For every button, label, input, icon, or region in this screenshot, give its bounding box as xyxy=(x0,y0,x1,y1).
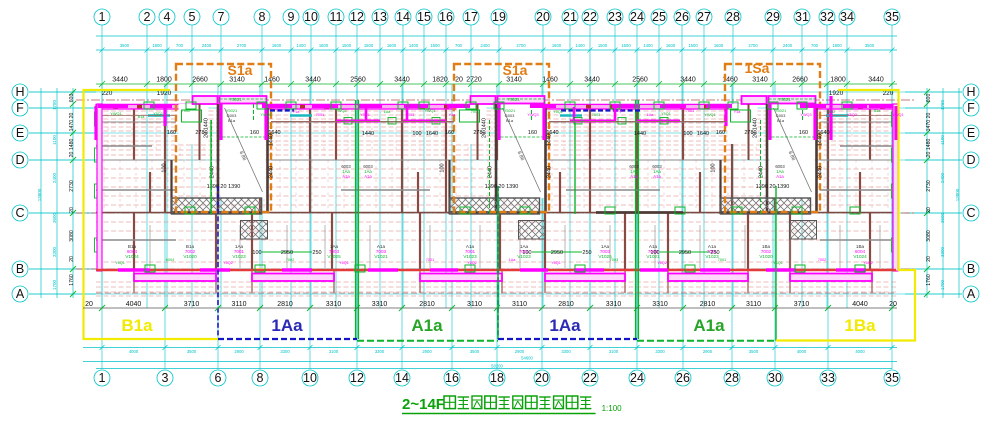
svg-text:S1a: S1a xyxy=(228,62,253,78)
svg-text:2440: 2440 xyxy=(818,166,824,178)
svg-text:3500: 3500 xyxy=(120,43,130,48)
svg-text:2440: 2440 xyxy=(759,166,765,178)
svg-text:A1a: A1a xyxy=(693,316,725,335)
svg-text:7001: 7001 xyxy=(718,258,726,262)
svg-text:600: 600 xyxy=(69,94,75,103)
svg-text:2900: 2900 xyxy=(234,349,244,354)
svg-text:700: 700 xyxy=(455,43,463,48)
svg-text:Y5021: Y5021 xyxy=(778,97,791,102)
svg-text:YWQ1: YWQ1 xyxy=(892,113,903,117)
svg-text:1820: 1820 xyxy=(432,77,448,84)
svg-text:1400: 1400 xyxy=(409,43,419,48)
svg-text:15: 15 xyxy=(417,10,431,24)
svg-text:1800: 1800 xyxy=(830,77,846,84)
svg-text:B1a: B1a xyxy=(506,118,514,123)
svg-text:V1025: V1025 xyxy=(327,254,341,259)
svg-text:V1023: V1023 xyxy=(463,254,477,259)
svg-text:2950: 2950 xyxy=(281,250,293,256)
svg-text:B1a: B1a xyxy=(228,118,236,123)
svg-text:24: 24 xyxy=(630,371,644,385)
svg-text:3310: 3310 xyxy=(652,301,668,308)
svg-text:20 1440: 20 1440 xyxy=(204,118,210,138)
svg-text:A1a: A1a xyxy=(776,174,784,179)
svg-text:A1a: A1a xyxy=(630,174,638,179)
svg-text:160: 160 xyxy=(167,130,176,136)
svg-text:1600: 1600 xyxy=(621,43,631,48)
svg-text:7002: 7002 xyxy=(182,109,190,113)
svg-text:35: 35 xyxy=(885,10,899,24)
svg-text:100: 100 xyxy=(711,163,717,172)
svg-text:Y1a: Y1a xyxy=(449,113,457,117)
svg-text:22: 22 xyxy=(583,371,597,385)
svg-text:2700: 2700 xyxy=(237,43,247,48)
svg-text:18: 18 xyxy=(490,371,504,385)
svg-text:8: 8 xyxy=(257,371,264,385)
svg-text:3310: 3310 xyxy=(326,301,342,308)
svg-text:F: F xyxy=(967,101,975,115)
svg-text:S1a: S1a xyxy=(503,62,528,78)
svg-text:3140: 3140 xyxy=(752,77,768,84)
svg-text:21: 21 xyxy=(563,10,577,24)
svg-text:Y5Q1: Y5Q1 xyxy=(360,113,370,117)
svg-text:54600: 54600 xyxy=(521,356,533,361)
svg-text:26: 26 xyxy=(675,10,689,24)
svg-text:700: 700 xyxy=(176,43,184,48)
svg-text:100: 100 xyxy=(252,250,261,256)
svg-text:1Sa: 1Sa xyxy=(745,60,770,76)
svg-text:250: 250 xyxy=(312,250,321,256)
svg-text:3100: 3100 xyxy=(609,349,619,354)
svg-text:Y6Q1: Y6Q1 xyxy=(339,261,349,265)
svg-text:4: 4 xyxy=(164,10,171,24)
svg-text:7003: 7003 xyxy=(592,113,600,117)
svg-text:20 1440: 20 1440 xyxy=(482,118,488,138)
svg-text:1800: 1800 xyxy=(156,77,172,84)
svg-text:100: 100 xyxy=(522,250,531,256)
svg-text:3440: 3440 xyxy=(868,77,884,84)
svg-text:20 1480: 20 1480 xyxy=(69,139,75,158)
svg-text:2900: 2900 xyxy=(515,349,525,354)
svg-text:7001: 7001 xyxy=(686,109,694,113)
svg-text:7002: 7002 xyxy=(827,110,835,114)
svg-text:C: C xyxy=(966,206,975,220)
svg-text:13: 13 xyxy=(373,10,387,24)
svg-text:2950: 2950 xyxy=(551,250,563,256)
svg-text:2700: 2700 xyxy=(516,43,526,48)
svg-text:20: 20 xyxy=(69,207,75,213)
svg-text:E: E xyxy=(16,126,24,140)
svg-text:17: 17 xyxy=(464,10,478,24)
svg-text:B1a: B1a xyxy=(874,109,882,113)
svg-text:250: 250 xyxy=(582,250,591,256)
svg-text:YWQ2: YWQ2 xyxy=(612,109,623,113)
svg-text:F: F xyxy=(16,101,24,115)
svg-text:YWQ1: YWQ1 xyxy=(424,109,435,113)
svg-text:V1024: V1024 xyxy=(853,254,867,259)
svg-text:A1a: A1a xyxy=(411,316,443,335)
svg-text:3440: 3440 xyxy=(112,77,128,84)
svg-text:58200: 58200 xyxy=(491,364,503,369)
svg-text:B1a: B1a xyxy=(777,118,785,123)
svg-text:4040: 4040 xyxy=(126,301,142,308)
svg-text:3080: 3080 xyxy=(69,230,75,242)
svg-text:B: B xyxy=(967,262,975,276)
svg-text:1760: 1760 xyxy=(926,274,932,286)
svg-text:Y1a: Y1a xyxy=(734,110,742,114)
svg-text:1400: 1400 xyxy=(575,43,585,48)
svg-text:10: 10 xyxy=(304,10,318,24)
svg-text:7002: 7002 xyxy=(818,258,826,262)
svg-text:3710: 3710 xyxy=(184,301,200,308)
svg-text:1Aa: 1Aa xyxy=(384,110,392,114)
svg-text:3300: 3300 xyxy=(561,349,571,354)
svg-text:E: E xyxy=(967,126,975,140)
svg-text:V1025: V1025 xyxy=(598,254,612,259)
svg-text:YWQ3: YWQ3 xyxy=(260,113,271,117)
svg-text:Y6Q1: Y6Q1 xyxy=(115,261,125,265)
svg-text:V1023: V1023 xyxy=(232,254,246,259)
svg-text:Y5Q2: Y5Q2 xyxy=(847,113,857,117)
svg-text:3600: 3600 xyxy=(52,212,57,223)
svg-text:B1a: B1a xyxy=(121,316,153,335)
svg-text:YWQ1: YWQ1 xyxy=(110,112,121,116)
svg-text:20: 20 xyxy=(926,256,932,262)
svg-text:2810: 2810 xyxy=(558,301,574,308)
svg-text:4000: 4000 xyxy=(797,349,807,354)
svg-text:4000: 4000 xyxy=(855,349,865,354)
svg-text:13800: 13800 xyxy=(955,188,960,201)
svg-text:1Aa: 1Aa xyxy=(509,258,517,262)
svg-text:YWQ3: YWQ3 xyxy=(527,113,538,117)
svg-text:5: 5 xyxy=(189,10,196,24)
svg-text:22: 22 xyxy=(583,10,597,24)
svg-text:3110: 3110 xyxy=(512,301,527,308)
svg-text:3600: 3600 xyxy=(940,212,945,223)
svg-text:1: 1 xyxy=(99,371,106,385)
svg-text:Y6Q1: Y6Q1 xyxy=(773,261,783,265)
svg-text:1400: 1400 xyxy=(296,43,306,48)
svg-text:31: 31 xyxy=(795,10,809,24)
svg-text:3300: 3300 xyxy=(940,246,945,257)
svg-text:D: D xyxy=(15,153,24,167)
svg-text:Y6Q2: Y6Q2 xyxy=(467,261,477,265)
svg-text:YWQ1: YWQ1 xyxy=(704,113,715,117)
svg-text:2560: 2560 xyxy=(350,77,366,84)
svg-text:20 1480: 20 1480 xyxy=(926,139,932,158)
svg-text:Y6Q1: Y6Q1 xyxy=(551,261,561,265)
svg-text:3100: 3100 xyxy=(329,349,339,354)
svg-text:2900: 2900 xyxy=(703,349,713,354)
svg-text:3440: 3440 xyxy=(394,77,410,84)
svg-text:2440: 2440 xyxy=(547,166,553,178)
svg-text:20: 20 xyxy=(889,301,897,308)
svg-text:A: A xyxy=(16,287,25,301)
svg-text:32: 32 xyxy=(820,10,834,24)
svg-text:A1a: A1a xyxy=(653,174,661,179)
svg-text:YWQ3: YWQ3 xyxy=(800,113,811,117)
svg-text:10: 10 xyxy=(303,371,317,385)
svg-text:B1a: B1a xyxy=(138,115,146,119)
svg-text:25: 25 xyxy=(652,10,666,24)
svg-text:8: 8 xyxy=(259,10,266,24)
svg-text:29: 29 xyxy=(766,10,780,24)
svg-text:1640: 1640 xyxy=(426,131,438,137)
svg-text:2400: 2400 xyxy=(202,43,212,48)
svg-text:1800: 1800 xyxy=(832,43,842,48)
svg-text:2400: 2400 xyxy=(480,43,490,48)
svg-text:H: H xyxy=(15,85,24,99)
svg-text:3310: 3310 xyxy=(372,301,388,308)
svg-text:3: 3 xyxy=(162,371,169,385)
svg-text:V1020: V1020 xyxy=(759,254,773,259)
svg-text:3440: 3440 xyxy=(305,77,321,84)
svg-text:1Aa: 1Aa xyxy=(549,316,581,335)
svg-text:20: 20 xyxy=(85,301,93,308)
svg-text:600: 600 xyxy=(926,94,932,103)
svg-text:26: 26 xyxy=(676,371,690,385)
svg-text:1780: 1780 xyxy=(52,99,57,110)
svg-text:35: 35 xyxy=(885,371,899,385)
svg-text:1Aa: 1Aa xyxy=(647,113,655,117)
svg-text:3300: 3300 xyxy=(375,349,385,354)
svg-text:1100: 1100 xyxy=(940,135,945,145)
svg-text:3440: 3440 xyxy=(680,77,696,84)
svg-text:D: D xyxy=(966,153,975,167)
svg-text:1600: 1600 xyxy=(272,43,282,48)
svg-text:1700: 1700 xyxy=(940,279,945,290)
svg-text:2720: 2720 xyxy=(466,77,482,84)
svg-text:3440: 3440 xyxy=(584,77,600,84)
svg-text:3110: 3110 xyxy=(231,301,246,308)
svg-text:7001: 7001 xyxy=(471,110,479,114)
svg-text:4040: 4040 xyxy=(852,301,868,308)
svg-text:B: B xyxy=(16,262,24,276)
svg-text:100: 100 xyxy=(683,131,692,137)
svg-text:2400: 2400 xyxy=(52,172,57,183)
svg-text:2810: 2810 xyxy=(700,301,716,308)
svg-text:Y6Q2: Y6Q2 xyxy=(863,261,873,265)
svg-text:160: 160 xyxy=(716,130,725,136)
svg-text:1600: 1600 xyxy=(430,43,440,48)
svg-text:Y5Q2: Y5Q2 xyxy=(153,112,163,116)
svg-text:1440: 1440 xyxy=(818,134,824,146)
svg-text:4000: 4000 xyxy=(129,349,139,354)
svg-text:Y5Q1: Y5Q1 xyxy=(661,112,671,116)
svg-text:1600: 1600 xyxy=(319,43,329,48)
svg-text:6: 6 xyxy=(215,371,222,385)
svg-text:100: 100 xyxy=(650,250,659,256)
svg-text:2440: 2440 xyxy=(269,166,275,178)
svg-text:3110: 3110 xyxy=(467,301,482,308)
svg-text:2560: 2560 xyxy=(632,77,648,84)
svg-text:3300: 3300 xyxy=(280,349,290,354)
svg-text:Y6Q2: Y6Q2 xyxy=(657,261,667,265)
svg-text:2730: 2730 xyxy=(926,180,932,192)
svg-text:20: 20 xyxy=(536,10,550,24)
svg-text:3110: 3110 xyxy=(746,301,761,308)
svg-text:1Aa: 1Aa xyxy=(271,316,303,335)
svg-text:30: 30 xyxy=(768,371,782,385)
svg-text:V1020: V1020 xyxy=(183,254,197,259)
svg-text:1600: 1600 xyxy=(387,43,397,48)
svg-text:Y5021: Y5021 xyxy=(229,97,242,102)
svg-text:250: 250 xyxy=(710,250,719,256)
svg-text:2730: 2730 xyxy=(69,180,75,192)
svg-text:1760: 1760 xyxy=(69,274,75,286)
svg-text:1440: 1440 xyxy=(269,134,275,146)
svg-text:28: 28 xyxy=(725,371,739,385)
svg-text:9: 9 xyxy=(288,10,295,24)
svg-text:12: 12 xyxy=(350,10,364,24)
svg-text:1600: 1600 xyxy=(666,43,676,48)
svg-text:27: 27 xyxy=(697,10,711,24)
svg-text:H: H xyxy=(966,85,975,99)
svg-text:7002: 7002 xyxy=(286,258,294,262)
svg-text:YWQ2: YWQ2 xyxy=(335,109,346,113)
svg-text:3500: 3500 xyxy=(749,349,759,354)
svg-text:Y5021: Y5021 xyxy=(507,97,520,102)
svg-text:1600: 1600 xyxy=(714,43,724,48)
svg-text:3500: 3500 xyxy=(470,349,480,354)
svg-text:Y5Q2: Y5Q2 xyxy=(553,110,563,114)
svg-text:14: 14 xyxy=(395,371,409,385)
svg-text:100: 100 xyxy=(162,163,168,172)
svg-text:1500: 1500 xyxy=(364,43,374,48)
svg-text:3710: 3710 xyxy=(794,301,810,308)
svg-text:3300: 3300 xyxy=(655,349,665,354)
svg-text:1440: 1440 xyxy=(362,131,374,137)
svg-text:20: 20 xyxy=(455,77,463,84)
svg-text:1700: 1700 xyxy=(52,279,57,290)
svg-text:V1021: V1021 xyxy=(374,254,388,259)
svg-text:33: 33 xyxy=(821,371,835,385)
svg-text:3080: 3080 xyxy=(926,230,932,242)
svg-text:7001: 7001 xyxy=(426,258,434,262)
svg-text:13800: 13800 xyxy=(37,188,42,201)
svg-text:Y6Q2: Y6Q2 xyxy=(223,261,233,265)
svg-text:A1a: A1a xyxy=(342,174,350,179)
svg-text:1400: 1400 xyxy=(643,43,653,48)
svg-text:1470 20: 1470 20 xyxy=(69,113,75,132)
svg-text:1440: 1440 xyxy=(547,134,553,146)
svg-text:1:100: 1:100 xyxy=(602,404,623,413)
svg-text:2810: 2810 xyxy=(277,301,293,308)
svg-text:2660: 2660 xyxy=(192,77,208,84)
svg-text:1100: 1100 xyxy=(52,135,57,145)
svg-text:1Ba: 1Ba xyxy=(844,316,876,335)
svg-text:14: 14 xyxy=(396,10,410,24)
svg-text:19: 19 xyxy=(492,10,506,24)
svg-text:2~14F: 2~14F xyxy=(402,396,445,413)
svg-text:6004: 6004 xyxy=(166,258,174,262)
svg-text:2660: 2660 xyxy=(792,77,808,84)
svg-text:7003: 7003 xyxy=(406,113,414,117)
svg-text:2400: 2400 xyxy=(940,172,945,183)
svg-text:24: 24 xyxy=(630,10,644,24)
svg-text:1640: 1640 xyxy=(697,131,709,137)
svg-text:34: 34 xyxy=(840,10,854,24)
svg-text:Y1a: Y1a xyxy=(293,110,301,114)
svg-text:2700: 2700 xyxy=(748,43,758,48)
svg-text:2440: 2440 xyxy=(488,166,494,178)
svg-text:1800: 1800 xyxy=(152,43,162,48)
svg-text:16: 16 xyxy=(445,371,459,385)
svg-text:2900: 2900 xyxy=(422,349,432,354)
svg-text:3310: 3310 xyxy=(606,301,622,308)
svg-text:1470 20: 1470 20 xyxy=(926,113,932,132)
svg-text:100: 100 xyxy=(412,131,421,137)
svg-text:2: 2 xyxy=(144,10,151,24)
svg-text:1500: 1500 xyxy=(598,43,608,48)
svg-text:1500: 1500 xyxy=(342,43,352,48)
svg-text:700: 700 xyxy=(811,43,819,48)
svg-text:20: 20 xyxy=(69,256,75,262)
svg-text:160: 160 xyxy=(799,130,808,136)
svg-text:1440: 1440 xyxy=(634,131,646,137)
svg-text:1500: 1500 xyxy=(688,43,698,48)
svg-text:1600: 1600 xyxy=(552,43,562,48)
svg-text:A: A xyxy=(967,287,976,301)
svg-text:2400: 2400 xyxy=(783,43,793,48)
svg-text:12: 12 xyxy=(350,371,364,385)
svg-text:3500: 3500 xyxy=(187,349,197,354)
svg-text:20: 20 xyxy=(535,371,549,385)
svg-text:160: 160 xyxy=(528,130,537,136)
svg-text:3500: 3500 xyxy=(865,43,875,48)
svg-text:C: C xyxy=(15,206,24,220)
svg-text:V1024: V1024 xyxy=(125,254,139,259)
svg-text:A1a: A1a xyxy=(364,174,372,179)
svg-text:1780: 1780 xyxy=(940,99,945,110)
svg-text:160: 160 xyxy=(250,130,259,136)
svg-text:11: 11 xyxy=(330,10,343,24)
svg-text:7: 7 xyxy=(218,10,225,24)
svg-text:3300: 3300 xyxy=(52,246,57,257)
svg-text:16: 16 xyxy=(439,10,453,24)
svg-text:2950: 2950 xyxy=(679,250,691,256)
svg-text:1: 1 xyxy=(99,10,106,24)
svg-text:20: 20 xyxy=(926,207,932,213)
svg-text:20 1440: 20 1440 xyxy=(753,118,759,138)
svg-text:2810: 2810 xyxy=(419,301,435,308)
svg-text:28: 28 xyxy=(726,10,740,24)
svg-text:100: 100 xyxy=(440,163,446,172)
svg-text:23: 23 xyxy=(608,10,622,24)
svg-text:160: 160 xyxy=(445,130,454,136)
svg-text:7001: 7001 xyxy=(316,113,324,117)
